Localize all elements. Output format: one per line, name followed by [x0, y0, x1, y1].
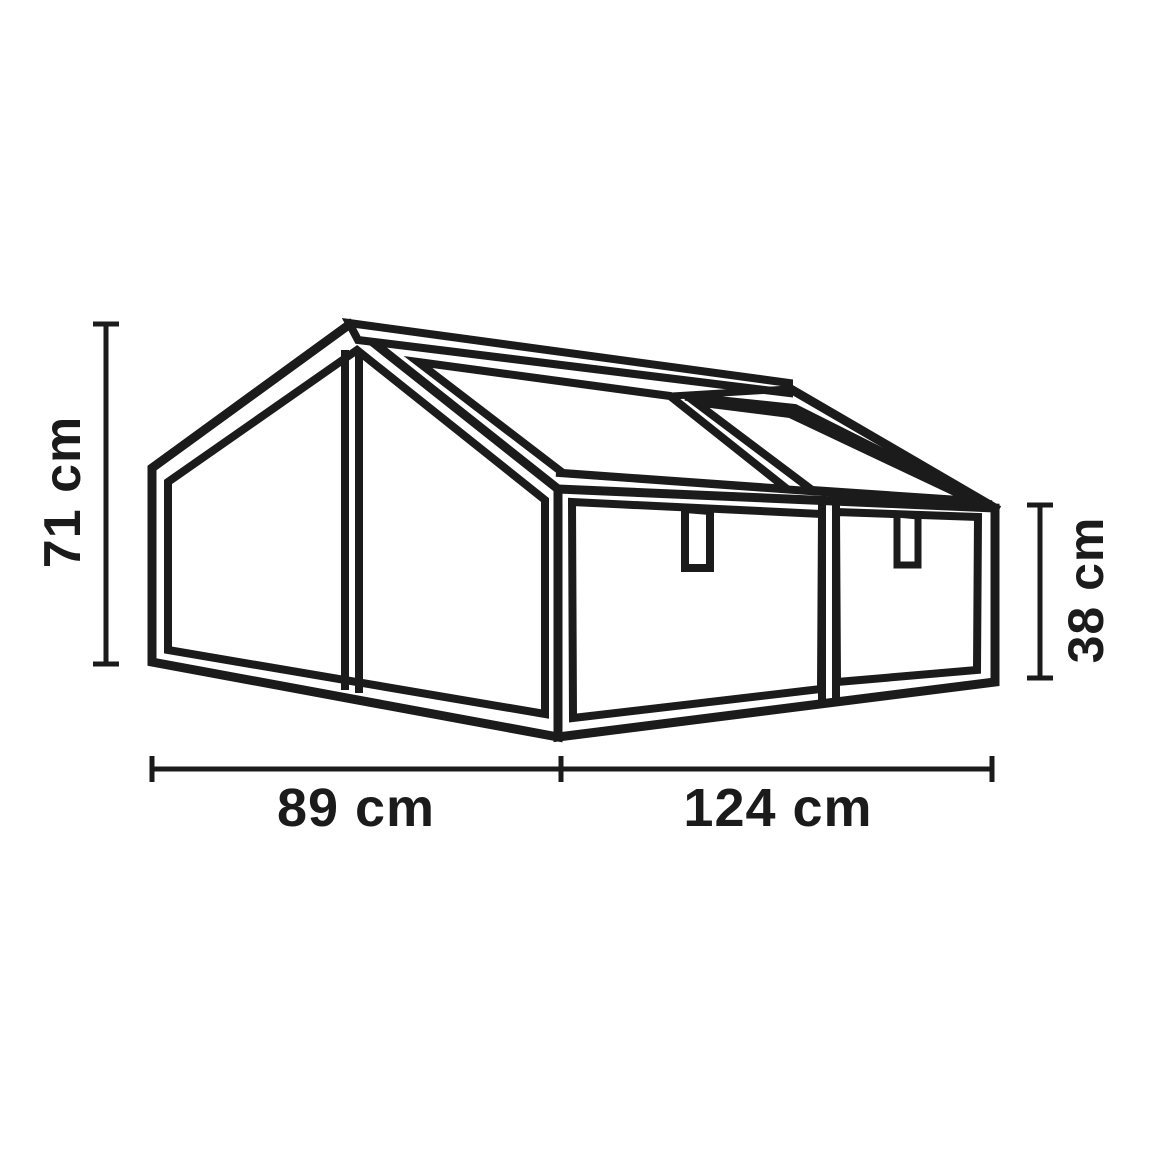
- dim-label-front-width: 124 cm: [683, 778, 872, 838]
- front-panel-right-handle: [897, 514, 918, 565]
- cold-frame-structure: [152, 323, 995, 737]
- dim-label-total-height: 71 cm: [34, 416, 92, 568]
- cold-frame-diagram: 71 cm 38 cm 89 cm 124 cm: [0, 0, 1160, 1160]
- diagram-canvas: 71 cm 38 cm 89 cm 124 cm: [0, 0, 1160, 1160]
- front-face-outer-frame: [558, 489, 995, 737]
- front-panel-left-handle: [685, 509, 710, 568]
- dim-label-front-height: 38 cm: [1058, 517, 1114, 664]
- dim-label-side-depth: 89 cm: [277, 778, 435, 838]
